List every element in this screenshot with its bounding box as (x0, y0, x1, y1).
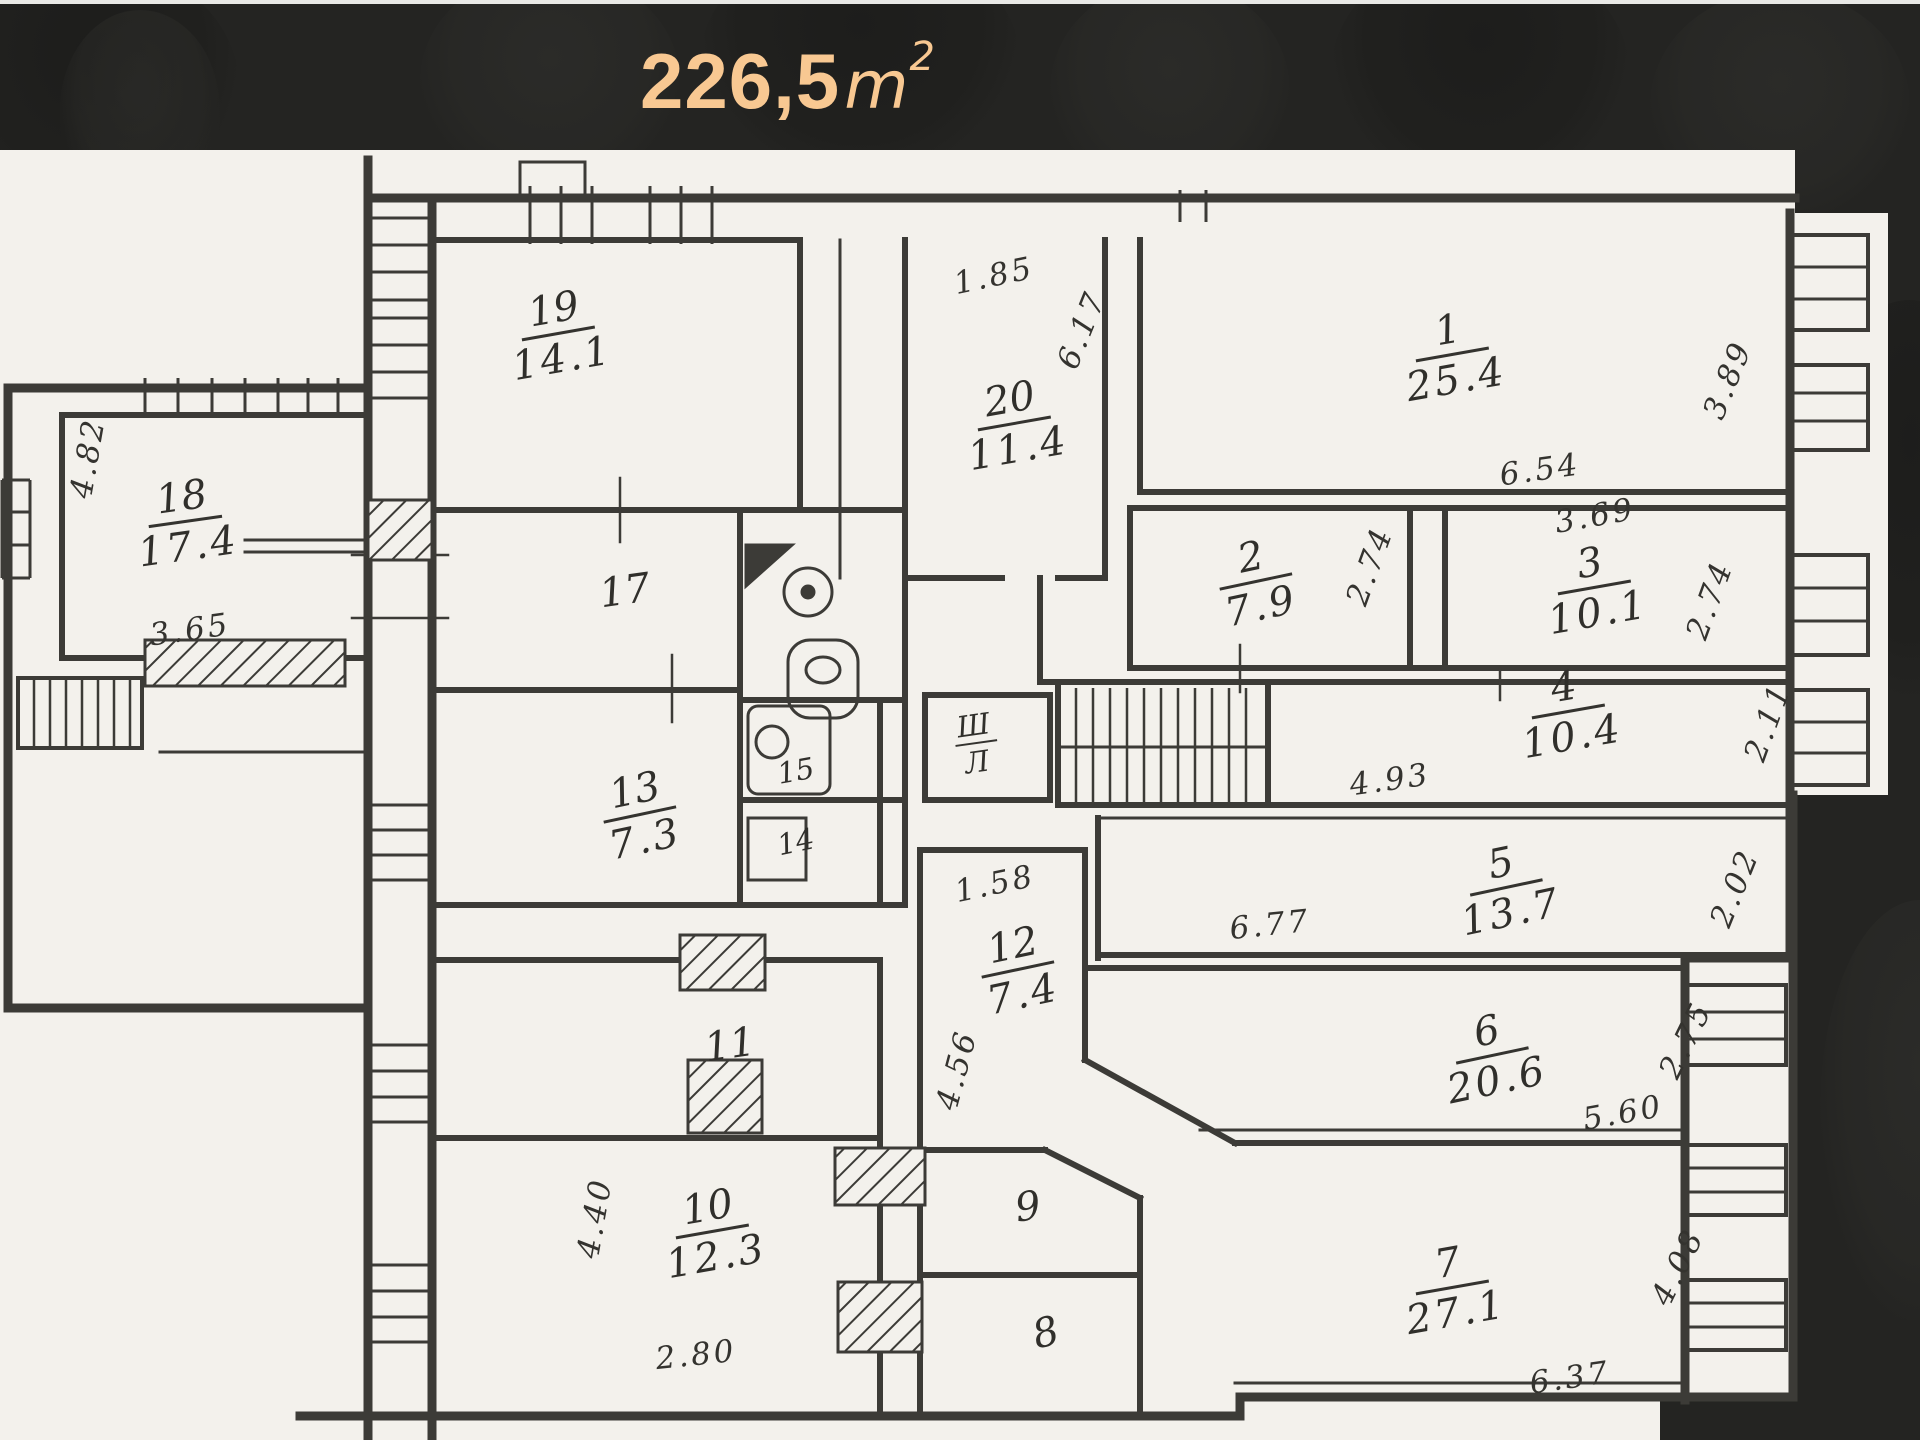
floorplan-drawing (0, 0, 1920, 1440)
plan-paper (0, 150, 1888, 1440)
area-value: 226,5 (640, 37, 840, 125)
page: 226,5m2 (0, 0, 1920, 1440)
area-unit: m (844, 47, 909, 124)
page-title: 226,5m2 (640, 34, 936, 127)
top-strip (0, 0, 1920, 4)
area-superscript: 2 (910, 34, 936, 80)
